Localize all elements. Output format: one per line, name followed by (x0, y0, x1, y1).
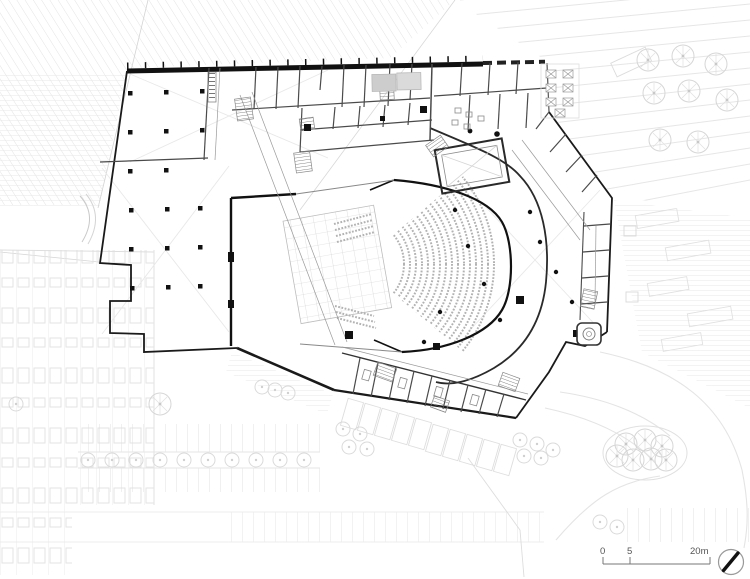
tree-island (603, 426, 687, 480)
building-layer (80, 59, 612, 419)
north-arrow (719, 550, 744, 575)
scale-bar: 0 5 20m (600, 546, 710, 564)
scale-label-20m: 20m (690, 546, 709, 557)
stepped-bank-west (0, 72, 126, 210)
floor-plan-drawing: 0 5 20m (0, 0, 750, 579)
kiosk-spiral (577, 323, 601, 345)
scale-label-0: 0 (600, 546, 605, 557)
floor-plan-page: 0 5 20m (0, 0, 750, 579)
auditorium-wall (394, 180, 511, 352)
outdoor-terrace-seating (541, 64, 579, 118)
corridor-lines (215, 68, 596, 394)
tree-cluster-south-right (513, 433, 560, 465)
service-blocks (372, 72, 421, 91)
terraced-steps-east (610, 195, 750, 410)
parking-row-south (228, 512, 544, 542)
parking-row-southeast (593, 508, 750, 542)
scale-label-5: 5 (627, 546, 632, 557)
tree-cluster-south-left (336, 422, 374, 456)
terrace-corner-southwest (0, 505, 72, 575)
terraced-landscape-northeast (460, 0, 750, 208)
